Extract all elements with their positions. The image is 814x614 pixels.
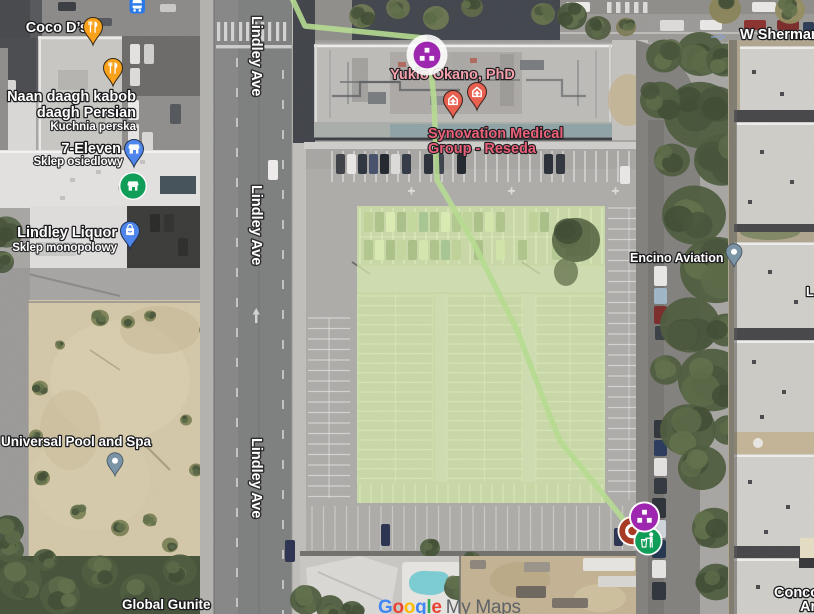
svg-text:Coco D’s: Coco D’s bbox=[26, 20, 88, 36]
svg-text:Lindley Ave: Lindley Ave bbox=[248, 16, 264, 96]
svg-text:Synovation Medical: Synovation Medical bbox=[428, 126, 563, 142]
svg-text:Encino Aviation: Encino Aviation bbox=[630, 251, 724, 265]
svg-text:W Sherman W: W Sherman W bbox=[740, 27, 814, 43]
svg-text:Sklep osiedlowy: Sklep osiedlowy bbox=[34, 156, 124, 168]
svg-text:Group - Reseda: Group - Reseda bbox=[428, 141, 537, 157]
svg-text:daagh Persian: daagh Persian bbox=[37, 105, 136, 121]
svg-text:Universal Pool and Spa: Universal Pool and Spa bbox=[1, 434, 152, 449]
svg-text:Lindley Liquor: Lindley Liquor bbox=[17, 225, 117, 241]
svg-text:Yukio Okano, PhD: Yukio Okano, PhD bbox=[390, 67, 515, 83]
svg-text:Lindley Ave: Lindley Ave bbox=[248, 185, 264, 265]
svg-text:Lindley Ave: Lindley Ave bbox=[248, 438, 264, 518]
svg-text:7-Eleven: 7-Eleven bbox=[61, 141, 121, 157]
svg-text:GoogleMy Maps: GoogleMy Maps bbox=[378, 597, 521, 614]
svg-text:L: L bbox=[806, 284, 814, 299]
svg-text:Global Gunite: Global Gunite bbox=[122, 597, 211, 612]
svg-text:Ar: Ar bbox=[800, 599, 814, 614]
svg-text:Sklep monopolowy: Sklep monopolowy bbox=[12, 242, 117, 254]
svg-text:Naan daagh kabob: Naan daagh kabob bbox=[7, 89, 136, 105]
svg-text:Kuchnia perska: Kuchnia perska bbox=[50, 121, 136, 133]
